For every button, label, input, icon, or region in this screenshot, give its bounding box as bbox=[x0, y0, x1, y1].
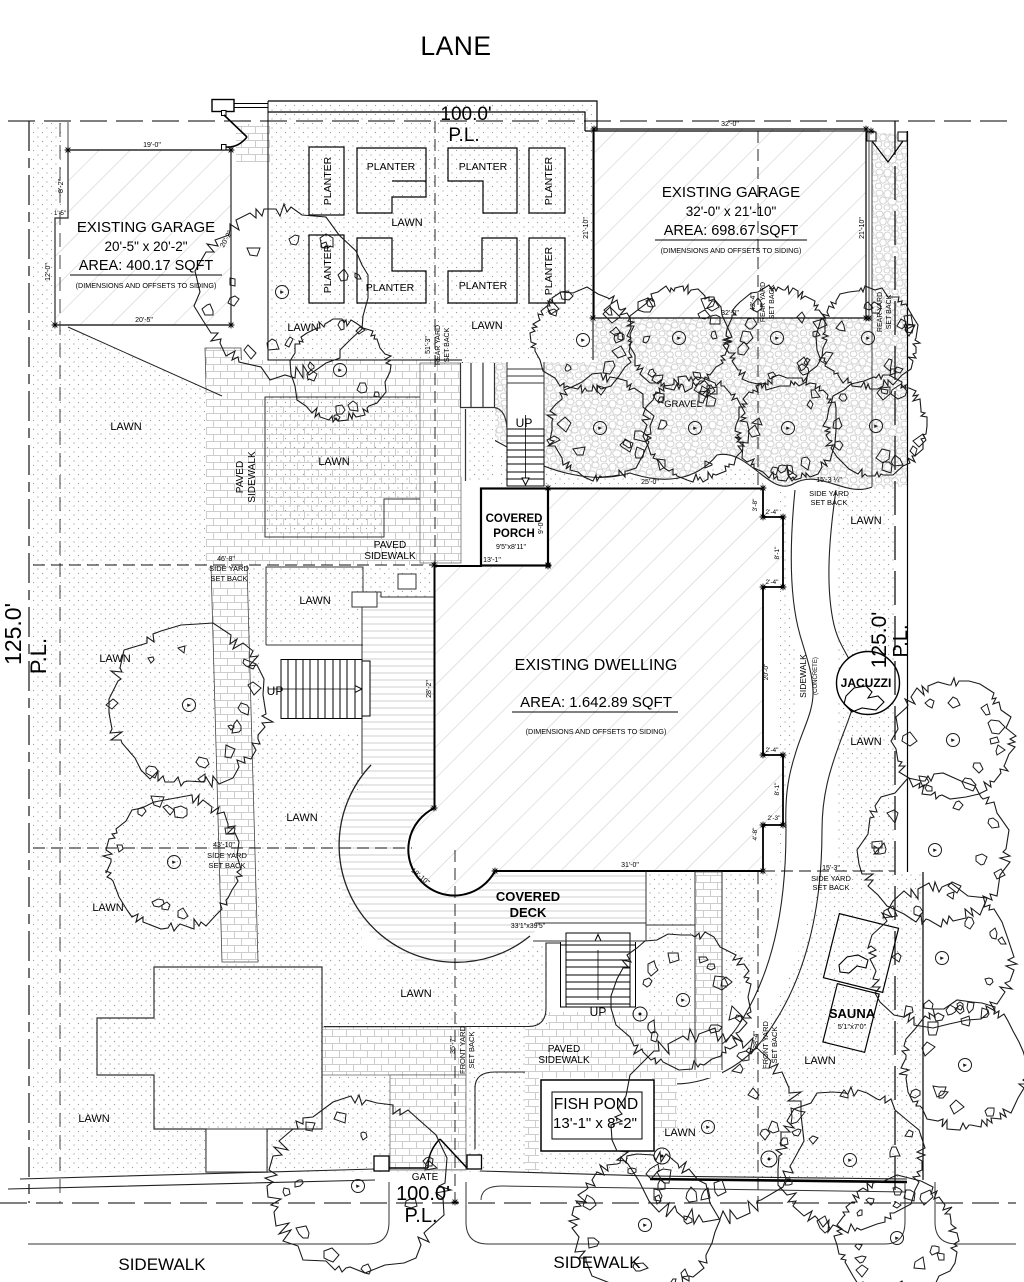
svg-text:AREA: 400.17 SQFT: AREA: 400.17 SQFT bbox=[79, 258, 214, 274]
svg-text:LAWN: LAWN bbox=[664, 1127, 695, 1139]
svg-text:PLANTER: PLANTER bbox=[322, 244, 334, 293]
svg-text:12'-0": 12'-0" bbox=[45, 263, 52, 281]
svg-text:2'-4": 2'-4" bbox=[766, 579, 780, 586]
svg-text:31'-0": 31'-0" bbox=[621, 862, 639, 869]
svg-text:SET BACK: SET BACK bbox=[770, 1027, 779, 1064]
svg-text:EXISTING GARAGE: EXISTING GARAGE bbox=[77, 219, 215, 236]
svg-text:32'-0": 32'-0" bbox=[721, 310, 739, 317]
svg-text:PLANTER: PLANTER bbox=[367, 161, 416, 173]
svg-text:35'-7": 35'-7" bbox=[450, 1036, 457, 1054]
svg-text:28'-2": 28'-2" bbox=[426, 680, 433, 698]
svg-text:SET BACK: SET BACK bbox=[211, 574, 248, 583]
svg-text:PLANTER: PLANTER bbox=[366, 282, 415, 294]
svg-text:3'-8": 3'-8" bbox=[752, 498, 759, 512]
svg-text:21'-10": 21'-10" bbox=[859, 217, 866, 239]
svg-text:SET BACK: SET BACK bbox=[886, 294, 893, 329]
svg-text:SIDE YARD: SIDE YARD bbox=[207, 851, 247, 860]
svg-text:SIDEWALK: SIDEWALK bbox=[798, 654, 808, 698]
svg-text:LAWN: LAWN bbox=[471, 320, 502, 332]
svg-text:LAWN: LAWN bbox=[391, 217, 422, 229]
svg-text:SIDE YARD: SIDE YARD bbox=[811, 874, 851, 883]
svg-text:PLANTER: PLANTER bbox=[322, 156, 334, 205]
svg-text:LAWN: LAWN bbox=[287, 322, 318, 334]
svg-text:UP: UP bbox=[516, 416, 533, 430]
svg-text:1'-5": 1'-5" bbox=[54, 211, 66, 217]
svg-text:LAWN: LAWN bbox=[92, 902, 123, 914]
svg-text:20'-5": 20'-5" bbox=[135, 317, 153, 324]
svg-text:33'1"x39'5": 33'1"x39'5" bbox=[511, 923, 546, 930]
svg-text:GATE: GATE bbox=[412, 1172, 439, 1183]
svg-text:15'-3": 15'-3" bbox=[822, 865, 840, 872]
svg-text:(DIMENSIONS AND OFFSETS TO SID: (DIMENSIONS AND OFFSETS TO SIDING) bbox=[526, 727, 667, 736]
svg-text:AREA: 1.642.89 SQFT: AREA: 1.642.89 SQFT bbox=[520, 694, 672, 711]
svg-text:(CONCRETE): (CONCRETE) bbox=[813, 657, 819, 695]
svg-text:GRAVEL: GRAVEL bbox=[664, 399, 702, 410]
svg-text:32'-0" x 21'-10": 32'-0" x 21'-10" bbox=[686, 204, 777, 219]
svg-text:SET BACK: SET BACK bbox=[813, 883, 850, 892]
svg-text:PAVED: PAVED bbox=[235, 461, 246, 493]
svg-text:13'-1": 13'-1" bbox=[483, 557, 501, 564]
svg-text:SIDEWALK: SIDEWALK bbox=[247, 451, 258, 503]
svg-text:38'-4": 38'-4" bbox=[753, 1031, 760, 1049]
svg-text:125.0': 125.0' bbox=[0, 603, 26, 665]
svg-text:P.L.: P.L. bbox=[26, 638, 51, 674]
svg-text:42'-4": 42'-4" bbox=[750, 293, 757, 311]
svg-text:P.L.: P.L. bbox=[448, 125, 479, 146]
svg-text:125.0': 125.0' bbox=[868, 612, 891, 669]
svg-text:FISH POND: FISH POND bbox=[554, 1096, 638, 1113]
svg-text:100.0': 100.0' bbox=[396, 1183, 450, 1205]
svg-text:LAWN: LAWN bbox=[804, 1055, 835, 1067]
svg-text:SIDEWALK: SIDEWALK bbox=[553, 1253, 641, 1272]
svg-text:46'-8": 46'-8" bbox=[217, 556, 235, 563]
svg-text:LAWN: LAWN bbox=[850, 736, 881, 748]
svg-text:LAWN: LAWN bbox=[400, 988, 431, 1000]
svg-text:20'-5" x 20'-2": 20'-5" x 20'-2" bbox=[104, 239, 187, 254]
svg-text:AREA: 698.67 SQFT: AREA: 698.67 SQFT bbox=[664, 223, 799, 239]
svg-text:P.L.: P.L. bbox=[890, 625, 912, 658]
svg-text:32'-0": 32'-0" bbox=[721, 121, 739, 128]
svg-text:LANE: LANE bbox=[420, 31, 491, 61]
svg-text:REAR YARD: REAR YARD bbox=[435, 325, 442, 365]
svg-text:FRONT YARD: FRONT YARD bbox=[458, 1025, 467, 1074]
svg-text:9'-0": 9'-0" bbox=[538, 520, 545, 534]
svg-text:51'-3": 51'-3" bbox=[425, 336, 432, 354]
svg-text:25'-0": 25'-0" bbox=[641, 479, 659, 486]
svg-text:LAWN: LAWN bbox=[299, 595, 330, 607]
svg-text:PAVED: PAVED bbox=[374, 540, 406, 551]
svg-text:PAVED: PAVED bbox=[548, 1044, 580, 1055]
svg-text:SIDEWALK: SIDEWALK bbox=[538, 1055, 590, 1066]
svg-text:EXISTING GARAGE: EXISTING GARAGE bbox=[662, 184, 800, 201]
svg-text:SET BACK: SET BACK bbox=[467, 1032, 476, 1069]
svg-text:SIDEWALK: SIDEWALK bbox=[118, 1255, 206, 1274]
svg-text:COVERED: COVERED bbox=[496, 889, 560, 904]
svg-text:PLANTER: PLANTER bbox=[543, 246, 555, 295]
svg-text:15'-3 ¼": 15'-3 ¼" bbox=[816, 477, 842, 484]
svg-text:2'-3": 2'-3" bbox=[768, 815, 782, 822]
svg-text:43'-10": 43'-10" bbox=[213, 842, 235, 849]
svg-text:LAWN: LAWN bbox=[78, 1113, 109, 1125]
svg-text:8'-1": 8'-1" bbox=[774, 546, 781, 560]
svg-text:21'-10": 21'-10" bbox=[583, 217, 590, 239]
svg-text:SIDEWALK: SIDEWALK bbox=[364, 551, 416, 562]
svg-text:SET BACK: SET BACK bbox=[209, 861, 246, 870]
svg-text:UP: UP bbox=[590, 1005, 607, 1019]
svg-text:20'-0": 20'-0" bbox=[763, 663, 770, 680]
svg-text:P.L.: P.L. bbox=[405, 1205, 438, 1227]
svg-text:SET BACK: SET BACK bbox=[444, 327, 451, 362]
svg-text:LAWN: LAWN bbox=[286, 812, 317, 824]
svg-text:5'1"x7'0": 5'1"x7'0" bbox=[838, 1022, 867, 1031]
svg-text:COVERED: COVERED bbox=[486, 513, 543, 525]
svg-text:2'-4": 2'-4" bbox=[766, 747, 780, 754]
svg-text:8'-1": 8'-1" bbox=[774, 782, 781, 796]
svg-text:SIDE YARD: SIDE YARD bbox=[809, 489, 849, 498]
svg-text:LAWN: LAWN bbox=[110, 421, 141, 433]
svg-text:(DIMENSIONS AND OFFSETS TO SID: (DIMENSIONS AND OFFSETS TO SIDING) bbox=[76, 281, 217, 290]
svg-text:19'-0": 19'-0" bbox=[143, 142, 161, 149]
svg-text:SET BACK: SET BACK bbox=[811, 498, 848, 507]
svg-text:LAWN: LAWN bbox=[99, 653, 130, 665]
svg-text:UP: UP bbox=[267, 684, 284, 698]
svg-text:REAR YARD: REAR YARD bbox=[877, 292, 884, 332]
svg-text:SIDE YARD: SIDE YARD bbox=[209, 564, 249, 573]
svg-text:LAWN: LAWN bbox=[850, 515, 881, 527]
svg-text:LAWN: LAWN bbox=[318, 456, 349, 468]
svg-text:PLANTER: PLANTER bbox=[459, 280, 508, 292]
svg-text:100.0': 100.0' bbox=[440, 104, 491, 125]
svg-text:8'-2": 8'-2" bbox=[58, 179, 65, 193]
svg-text:SET BACK: SET BACK bbox=[769, 284, 776, 319]
svg-text:PLANTER: PLANTER bbox=[459, 161, 508, 173]
svg-text:4'-8": 4'-8" bbox=[752, 827, 759, 841]
svg-text:SAUNA: SAUNA bbox=[829, 1006, 876, 1021]
svg-text:13'-1" x 8'-2": 13'-1" x 8'-2" bbox=[553, 1115, 637, 1132]
svg-text:DECK: DECK bbox=[510, 905, 547, 920]
svg-text:EXISTING DWELLING: EXISTING DWELLING bbox=[515, 657, 678, 674]
svg-text:PORCH: PORCH bbox=[493, 528, 535, 540]
svg-text:(DIMENSIONS AND OFFSETS TO SID: (DIMENSIONS AND OFFSETS TO SIDING) bbox=[661, 246, 802, 255]
svg-text:2'-4": 2'-4" bbox=[766, 509, 780, 516]
svg-text:JACUZZI: JACUZZI bbox=[841, 676, 892, 690]
svg-text:FRONT YARD: FRONT YARD bbox=[761, 1020, 770, 1069]
svg-text:9'5"x8'11": 9'5"x8'11" bbox=[496, 544, 527, 551]
svg-text:REAR YARD: REAR YARD bbox=[760, 282, 767, 322]
svg-text:PLANTER: PLANTER bbox=[543, 156, 555, 205]
